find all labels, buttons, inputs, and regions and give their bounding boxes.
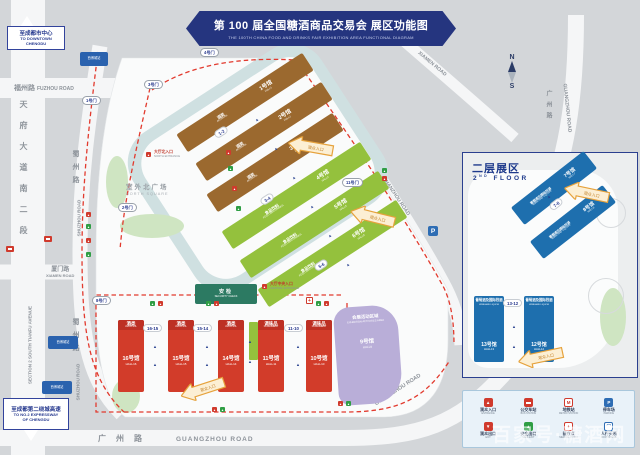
metro-station-sign: 西博城站 <box>42 381 72 394</box>
hall-number-en: HALL11 <box>258 363 284 367</box>
pedestrian-arrow-icon: ▲ <box>296 363 300 367</box>
hall-category: 葡萄酒及国际烈酒 <box>525 299 553 303</box>
entrance-pin-icon: ▲ <box>86 212 91 217</box>
road-label-tianfu-cn: 天府大道南二段 <box>18 100 29 247</box>
park-green <box>120 214 184 238</box>
legend-label-en: PARKING <box>604 413 615 416</box>
entrance-name-en: CENTRAL ENTRANCE <box>270 287 299 290</box>
bus-stop-icon <box>6 246 14 252</box>
road-name-cn: 厦门路 <box>46 264 74 273</box>
hall-category-en: ALCOHOL <box>118 326 144 329</box>
square-name-cn: 室外北广场 <box>126 184 169 192</box>
medical-point-icon: + <box>306 297 313 304</box>
legend-item-bus: 公交车站 BUS STATION <box>509 396 547 418</box>
road-name-en: FUZHOU ROAD <box>37 86 74 92</box>
hall-category: 葡萄酒及国际烈酒 <box>475 299 503 303</box>
pedestrian-arrow-icon: ▲ <box>248 360 252 364</box>
square-name-en: NORTH SQUARE <box>126 192 169 197</box>
hall-15: 酒类ALCOHOL 15号馆HALL15 <box>168 320 194 392</box>
gate-16-15: 16-15 <box>143 324 162 332</box>
pedestrian-arrow-icon: ▲ <box>248 340 252 344</box>
compass-north-label: N <box>509 54 514 61</box>
metro-icon: M <box>564 398 573 407</box>
legend-label-en: METRO STATION <box>559 413 578 416</box>
road-label-shuzhou-en: SHUZHOU ROAD <box>76 364 81 401</box>
pedestrian-arrow-icon: ▲ <box>205 345 209 349</box>
legend-label-en: EXIT <box>485 437 490 440</box>
exit-pin-icon: ▲ <box>86 252 91 257</box>
hall-11: 调味品CONDIMENT 11号馆HALL11 <box>258 320 284 392</box>
road-label-tianfu-en: SECTION 2 SOUTH TIANFU AVENUE <box>28 306 33 384</box>
sign-text: CHENGDU <box>8 42 64 47</box>
inset-subtitle: 2ND FLOOR <box>473 174 529 182</box>
legend-item-parking: P 停车场 PARKING <box>590 396 628 418</box>
inset-subtitle-sup: ND <box>479 174 489 178</box>
gate-11: 11号门 <box>342 178 363 187</box>
title-banner: 第 100 届全国糖酒商品交易会 展区功能图 THE 100TH CHINA F… <box>186 11 456 46</box>
north-entrance-label: 大厅北入口 NORTH ENTRANCE <box>154 150 180 158</box>
gate-8: 8号门 <box>92 296 111 305</box>
sign-to-downtown: 至成都市中心 TO DOWNTOWN CHENGDU <box>7 26 65 50</box>
exit-pin-icon: ▲ <box>150 301 155 306</box>
road-label-guangzhou-en: GUANGZHOU ROAD <box>176 436 254 443</box>
legend-item-metro: M 地铁站 METRO STATION <box>550 396 588 418</box>
legend-label-en: ENTRANCE <box>482 413 495 416</box>
entrance-pin-icon: ▲ <box>226 150 231 155</box>
entrance-pin-icon: ▲ <box>214 301 219 306</box>
gate-13-12: 13-12 <box>503 299 522 307</box>
exit-pin-icon: ▲ <box>316 301 321 306</box>
security-label-en: SECURITY CHECK <box>215 295 238 298</box>
inset-circle-decor <box>588 278 624 314</box>
entrance-pin-icon: ▲ <box>86 238 91 243</box>
road-label-shuzhou-en: SHUZHOU ROAD <box>77 200 82 237</box>
arrow-down-icon <box>24 430 38 441</box>
metro-station-sign: 西博城站 <box>48 336 78 349</box>
sign-to-expressway: 至成都第二绕城高速 TO NO.2 EXPRESSWAY OF CHENGDU <box>3 398 69 430</box>
hall-category-en: CONDIMENT <box>258 326 284 329</box>
legend-label-en: BUS STATION <box>521 413 537 416</box>
exit-pin-icon: ▲ <box>220 407 225 412</box>
gate-2: 2号门 <box>118 203 137 212</box>
hall-10: 调味品CONDIMENT 10号馆HALL10 <box>306 320 332 392</box>
gate-3: 3号门 <box>144 80 163 89</box>
parking-icon: P <box>428 226 438 236</box>
hall-category-en: WINE AND LIQUOR <box>475 304 503 306</box>
page-subtitle: THE 100TH CHINA FOOD AND DRINKS FAIR EXH… <box>228 35 414 40</box>
entrance-pin-icon: ▲ <box>338 401 343 406</box>
entrance-pin-icon: ▲ <box>212 407 217 412</box>
gate-15-14: 15-14 <box>193 324 212 332</box>
exit-pin-icon: ▲ <box>382 168 387 173</box>
bus-icon <box>524 398 533 407</box>
exit-pin-icon: ▲ <box>86 224 91 229</box>
north-square-label: 室外北广场 NORTH SQUARE <box>126 184 169 197</box>
page-title: 第 100 届全国糖酒商品交易会 展区功能图 <box>214 17 429 33</box>
entrance-name-en: NORTH ENTRANCE <box>154 155 180 158</box>
gate-4: 4号门 <box>200 48 219 57</box>
road-label-xiamen-left: 厦门路 XIAMEN ROAD <box>46 264 74 278</box>
hall-number-en: HALL14 <box>218 363 244 367</box>
pedestrian-arrow-icon: ▲ <box>512 345 516 349</box>
pedestrian-arrow-icon: ▲ <box>153 363 157 367</box>
road-name-en: XIAMEN ROAD <box>46 273 74 278</box>
road-name-cn: 福州路 <box>14 85 35 92</box>
hall-16: 酒类ALCOHOL 16号馆HALL16 <box>118 320 144 392</box>
pedestrian-arrow-icon: ▲ <box>153 345 157 349</box>
entrance-pin-icon: ▲ <box>146 152 151 157</box>
compass-south-label: S <box>510 83 515 90</box>
hall-category-en: CONDIMENT <box>306 326 332 329</box>
hall-number-en: HALL13 <box>475 348 503 351</box>
hall-category-en: ALCOHOL <box>218 326 244 329</box>
hall-number-en: HALL10 <box>306 363 332 367</box>
road-label-fuzhou: 福州路 FUZHOU ROAD <box>14 83 74 93</box>
inset-subtitle-rest: FLOOR <box>489 175 529 182</box>
hall-number-en: HALL16 <box>118 363 144 367</box>
pedestrian-arrow-icon: ▲ <box>205 363 209 367</box>
exit-pin-icon: ▲ <box>228 166 233 171</box>
exhibition-map: 第 100 届全国糖酒商品交易会 展区功能图 THE 100TH CHINA F… <box>0 0 640 455</box>
compass-needle-icon <box>508 72 516 83</box>
hall-category-en: WINE AND LIQUOR <box>525 304 553 306</box>
road-label-shuzhou-cn: 蜀州路 <box>70 150 80 189</box>
parking-icon: P <box>604 398 613 407</box>
gate-1: 1号门 <box>82 96 101 105</box>
compass: N S <box>502 54 522 90</box>
road-label-guangzhou-cn: 广州路 <box>98 433 152 444</box>
exit-pin-icon: ▲ <box>346 401 351 406</box>
sign-text: OF CHENGDU <box>4 418 68 423</box>
hall-category-en: ALCOHOL <box>168 326 194 329</box>
exit-pin-icon: ▲ <box>206 301 211 306</box>
compass-needle-icon <box>508 61 516 72</box>
hall-9: 会展活动区域 EXHIBITION ACTIVITIES AREA 9号馆 HA… <box>333 304 404 406</box>
security-check-area: 安检 SECURITY CHECK <box>195 284 257 304</box>
hall-13: 葡萄酒及国际烈酒 WINE AND LIQUOR 13号馆HALL13 <box>474 296 504 362</box>
metro-station-sign: 西博城站 <box>80 52 108 66</box>
entrance-pin-icon: ▲ <box>262 284 267 289</box>
road-label-guangzhou-right-cn: 广州路 <box>544 90 553 123</box>
pedestrian-arrow-icon: ▲ <box>296 345 300 349</box>
gate-11-10: 11-10 <box>284 324 303 332</box>
entrance-pin-icon: ▲ <box>158 301 163 306</box>
bus-stop-icon <box>44 236 52 242</box>
entrance-pin-icon: ▲ <box>232 186 237 191</box>
hall-number-en: HALL15 <box>168 363 194 367</box>
watermark: 百家号·糖酒网 <box>492 420 626 447</box>
legend-item-entrance: ▲ 观众入口 ENTRANCE <box>469 396 507 418</box>
entrance-pin-icon: ▲ <box>324 301 329 306</box>
exit-pin-icon: ▲ <box>236 206 241 211</box>
pedestrian-arrow-icon: ▲ <box>512 325 516 329</box>
central-entrance-label: 大厅中央入口 CENTRAL ENTRANCE <box>270 282 299 290</box>
park-green <box>106 156 128 208</box>
entrance-icon: ▲ <box>484 398 493 407</box>
entrance-pin-icon: ▲ <box>382 176 387 181</box>
